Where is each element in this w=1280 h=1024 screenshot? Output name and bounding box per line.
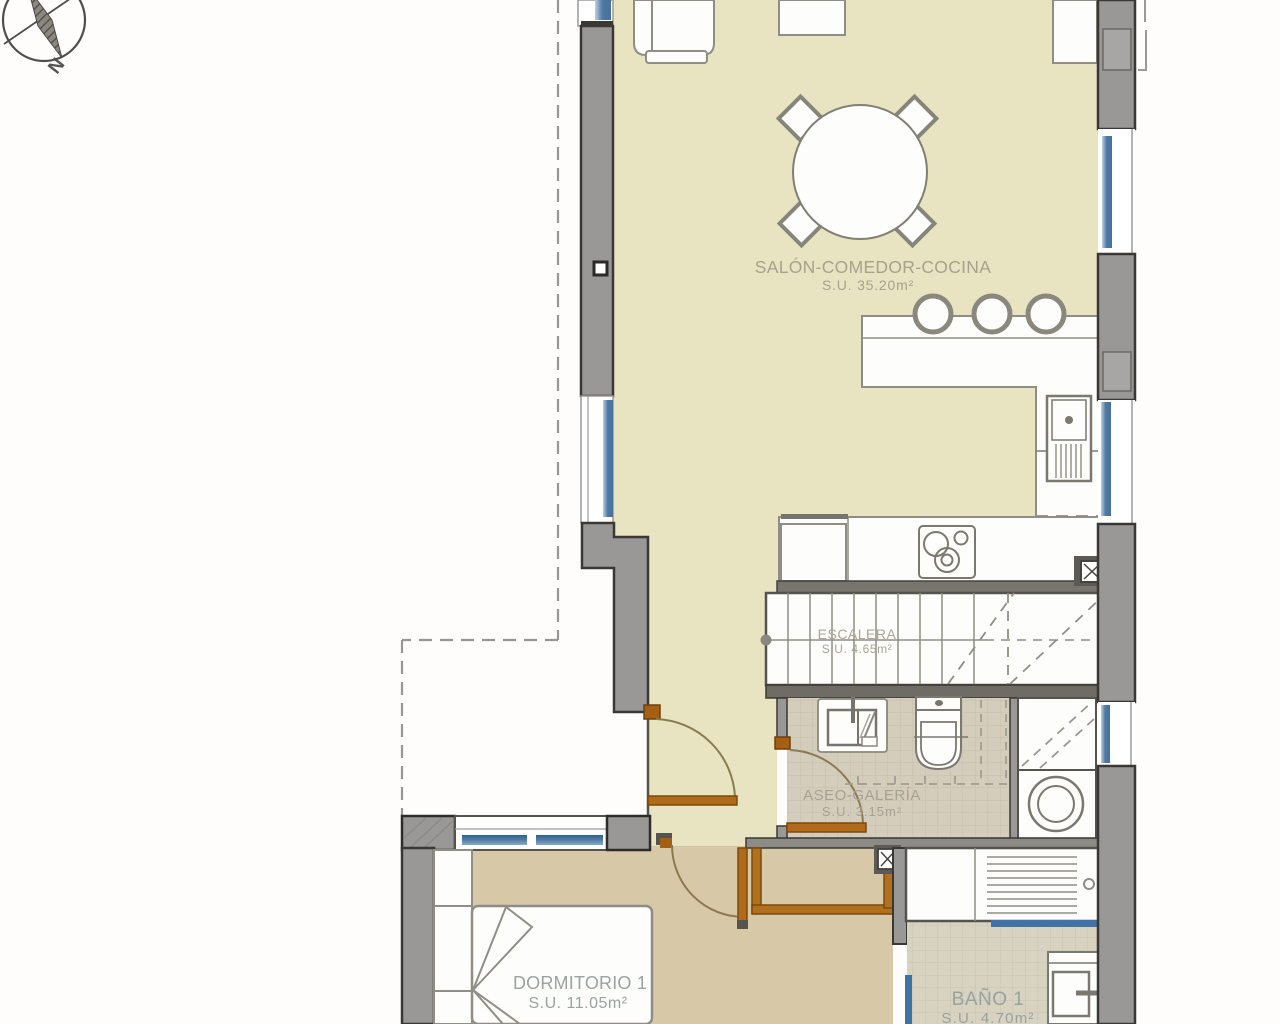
svg-text:DORMITORIO 1: DORMITORIO 1: [513, 973, 647, 993]
svg-text:S.U. 3.15m²: S.U. 3.15m²: [822, 804, 902, 819]
svg-text:S.U. 35.20m²: S.U. 35.20m²: [822, 277, 914, 293]
svg-text:S.U. 4.65m²: S.U. 4.65m²: [822, 642, 893, 656]
svg-text:S.U. 4.70m²: S.U. 4.70m²: [941, 1010, 1034, 1024]
svg-text:ASEO-GALERÍA: ASEO-GALERÍA: [803, 787, 921, 804]
svg-text:S.U. 11.05m²: S.U. 11.05m²: [528, 995, 627, 1012]
svg-text:SALÓN-COMEDOR-COCINA: SALÓN-COMEDOR-COCINA: [755, 256, 991, 277]
svg-text:ESCALERA: ESCALERA: [818, 626, 897, 642]
svg-text:BAÑO 1: BAÑO 1: [952, 988, 1025, 1010]
